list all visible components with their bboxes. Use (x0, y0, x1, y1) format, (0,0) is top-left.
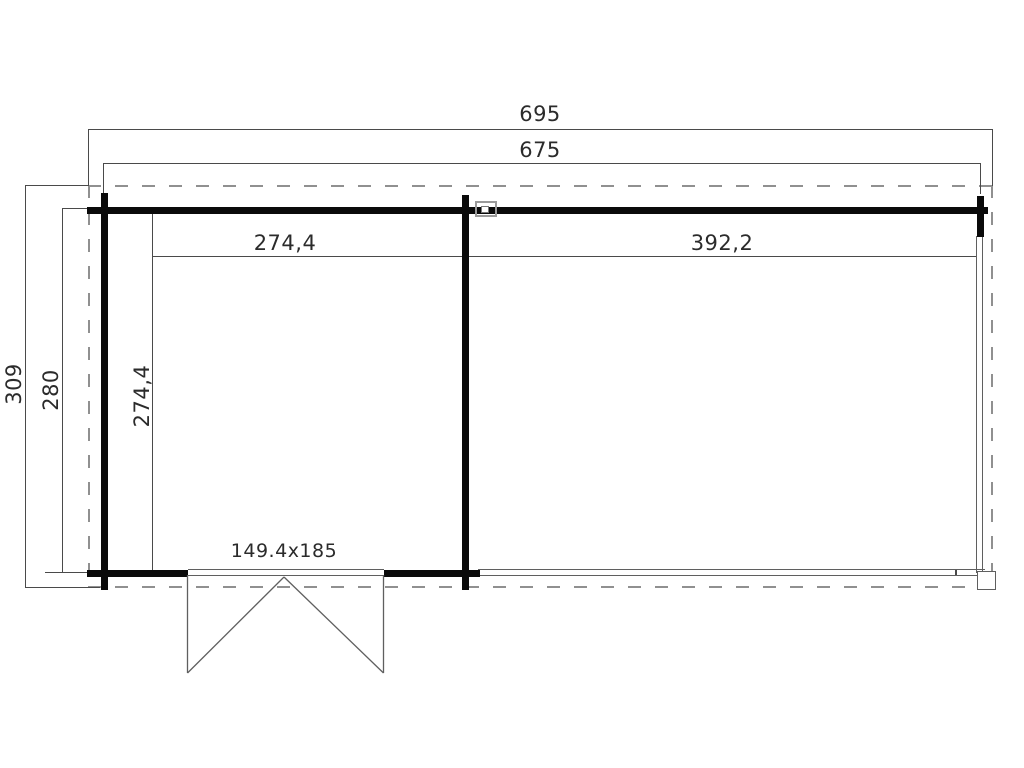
dim-ext-body-width-right (980, 163, 981, 194)
overhang-outline-right (991, 185, 993, 588)
dim-label-room-left-width: 274,4 (185, 232, 385, 254)
wall-fixture-symbol (475, 201, 497, 217)
wall-left (101, 193, 108, 590)
dim-line-room-widths (152, 256, 977, 257)
wall-bottom-mid (384, 570, 480, 577)
dim-label-door-size: 149.4x185 (184, 541, 384, 561)
door-leaf-left-swing (188, 577, 285, 673)
overhang-outline-top (88, 185, 993, 187)
dim-ext-overall-width-left (88, 129, 89, 186)
dim-label-body-width: 675 (440, 139, 640, 161)
dim-ext-overall-depth-bottom (25, 587, 100, 588)
wall-partition (462, 195, 469, 590)
dim-label-room-right-width: 392,2 (622, 232, 822, 254)
wall-bottom-left (87, 570, 188, 577)
wall-right-stub (977, 196, 984, 237)
dim-ext-overall-depth-top (25, 185, 88, 186)
wall-top (87, 207, 988, 214)
door-leaf-right-swing (284, 577, 384, 673)
dim-ext-body-width-left (103, 163, 104, 194)
dim-label-room-left-depth: 274,4 (131, 346, 153, 446)
dim-line-overall-width (88, 129, 993, 130)
door-swing (186, 575, 386, 675)
wall-joint-tick (955, 570, 957, 575)
floor-plan-canvas: 695 675 309 280 274,4 392,2 274,4 149.4 (0, 0, 1024, 768)
thin-wall-bottom-right (478, 569, 985, 576)
overhang-outline-left (88, 185, 90, 588)
corner-post-outline (977, 571, 996, 590)
dim-line-body-width (103, 163, 981, 164)
thin-wall-right (976, 236, 983, 573)
dim-label-overall-width: 695 (440, 103, 640, 125)
dim-label-overall-depth: 309 (3, 334, 25, 434)
dim-label-body-depth: 280 (40, 340, 62, 440)
wall-fixture-inner (481, 206, 489, 213)
dim-ext-overall-width-right (992, 129, 993, 186)
